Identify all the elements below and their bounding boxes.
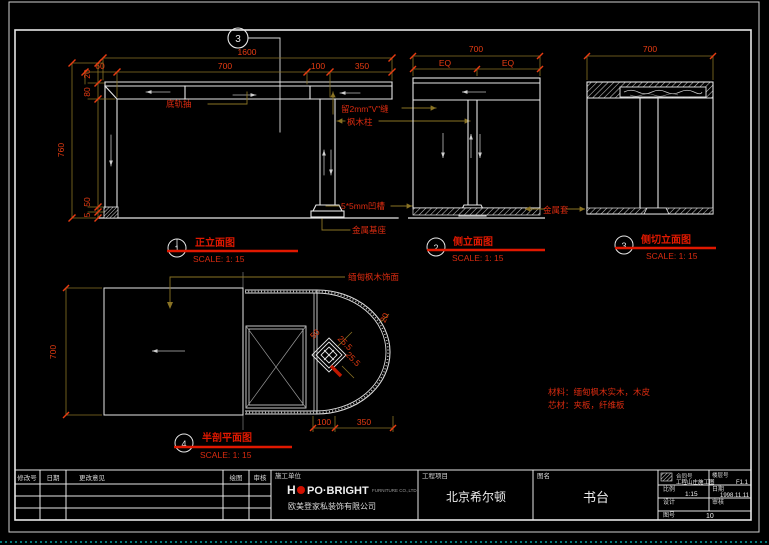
logo-text: PO·BRIGHT: [307, 485, 369, 497]
dim-60: 60: [95, 61, 105, 71]
dim-diamond-255b: 25.5: [344, 349, 363, 368]
callout-number: 3: [235, 34, 241, 45]
project-label: 工程项目: [422, 471, 448, 480]
dim-5: 5: [82, 212, 92, 217]
logo-red-dot: [297, 486, 305, 494]
floor-value: F1.1: [736, 480, 749, 486]
company-logo: H PO·BRIGHT FURNITURE CO.,LTD: [287, 483, 417, 497]
side-elevation-view: 700 EQ EQ 金属套: [408, 44, 585, 218]
dim-plan-100: 100: [317, 417, 331, 427]
dim-diamond-50: 50: [308, 327, 322, 341]
label-v-groove: 留2mm"V"缝: [341, 104, 389, 114]
base-hatch-strip: [413, 208, 540, 215]
label-metal-sleeve: 金属套: [543, 205, 569, 215]
view4-scale: SCALE: 1: 15: [200, 450, 252, 460]
scale-label: 比例: [663, 485, 675, 493]
view2-scale: SCALE: 1: 15: [452, 253, 504, 263]
view3-scale: SCALE: 1: 15: [646, 251, 698, 261]
label-finish: 缅甸枫木饰面: [348, 272, 400, 282]
design-label: 设计: [663, 498, 675, 506]
contract-label: 合同号: [676, 472, 693, 480]
view3-title: 侧切立面图: [641, 233, 691, 246]
dim-total-width: 1600: [238, 47, 257, 57]
dim-eq-left: EQ: [439, 58, 452, 68]
dim-side-width: 700: [469, 44, 483, 54]
sheet-name-label: 图名: [537, 471, 550, 480]
floor-label: 楼层号: [712, 471, 729, 479]
note-core: 芯材：夹板，纤维板: [548, 400, 625, 410]
rev-col-comment: 更改意见: [79, 473, 106, 482]
view2-number: 2: [433, 243, 438, 253]
view1-number: 1: [174, 244, 179, 254]
dim-eq-right: EQ: [502, 58, 515, 68]
dim-plan-350: 350: [357, 417, 371, 427]
date-label: 日期: [712, 485, 724, 493]
counter-band-hatch: [245, 292, 388, 413]
dim-350: 350: [355, 61, 369, 71]
side-section-view: 700: [584, 44, 716, 214]
date-value: 1998.11.11: [720, 493, 750, 499]
dim-plan-depth: 700: [48, 345, 58, 359]
legend-hatch-swatch: [661, 473, 672, 481]
scale-value: 1:15: [685, 491, 698, 498]
company-name-cn: 欧美登家私装饰有限公司: [288, 501, 376, 511]
rev-col-check: 审核: [254, 473, 268, 482]
label-bottom-drawer: 底轨抽: [166, 99, 192, 109]
dim-section-width: 700: [643, 44, 657, 54]
dim-100: 100: [311, 61, 325, 71]
dim-80: 80: [82, 87, 92, 97]
material-notes: 材料：缅甸枫木实木，木皮 芯材：夹板，纤维板: [548, 387, 651, 410]
label-recess-groove: 5*5mm凹槽: [341, 201, 385, 211]
view1-scale: SCALE: 1: 15: [193, 254, 245, 264]
drawing-canvas: 3: [0, 0, 769, 545]
front-elevation-view: 3: [56, 28, 470, 235]
cad-drawing-sheet: 3: [0, 0, 769, 545]
drawing-no-label: 图号: [663, 512, 675, 519]
metal-base-hatch: [104, 207, 118, 218]
drawing-no-value: 10: [706, 513, 714, 520]
dim-20: 20: [82, 69, 92, 79]
label-metal-base: 金属基座: [352, 225, 387, 235]
base-notch: [644, 208, 669, 214]
drawer-section: [620, 87, 706, 97]
view3-number: 3: [621, 241, 626, 251]
contractor-label: 施工单位: [275, 471, 302, 480]
label-maple-post: 枫木柱: [347, 117, 373, 127]
view4-title: 半剖平面图: [202, 431, 252, 444]
red-dim-bar: [331, 366, 341, 376]
project-name: 北京希尔顿: [446, 489, 506, 504]
dim-50: 50: [82, 197, 92, 207]
logo-h: H: [287, 483, 296, 497]
view1-title: 正立面图: [195, 236, 235, 249]
view2-title: 侧立面图: [453, 235, 493, 248]
note-material: 材料：缅甸枫木实木，木皮: [548, 387, 651, 397]
sheet-name: 书台: [583, 490, 609, 505]
dim-edge-20: 20: [378, 311, 391, 324]
title-block: 修改号 日期 更改意见 绘图 审核 施工单位 H PO·BRIGHT FURNI…: [15, 470, 751, 520]
check-label: 审核: [712, 498, 724, 506]
plan-view: 700 50 25.5 25.5 20: [48, 272, 400, 432]
dim-700: 700: [218, 61, 232, 71]
rev-col-draw: 绘图: [230, 473, 243, 482]
contract-value: 工程山庄施工图: [676, 478, 715, 486]
dim-760: 760: [56, 143, 66, 157]
logo-subtext: FURNITURE CO.,LTD: [372, 488, 417, 493]
rev-col-number: 修改号: [17, 473, 37, 482]
desk-top-plan: [104, 288, 243, 415]
rev-col-date: 日期: [47, 474, 61, 482]
